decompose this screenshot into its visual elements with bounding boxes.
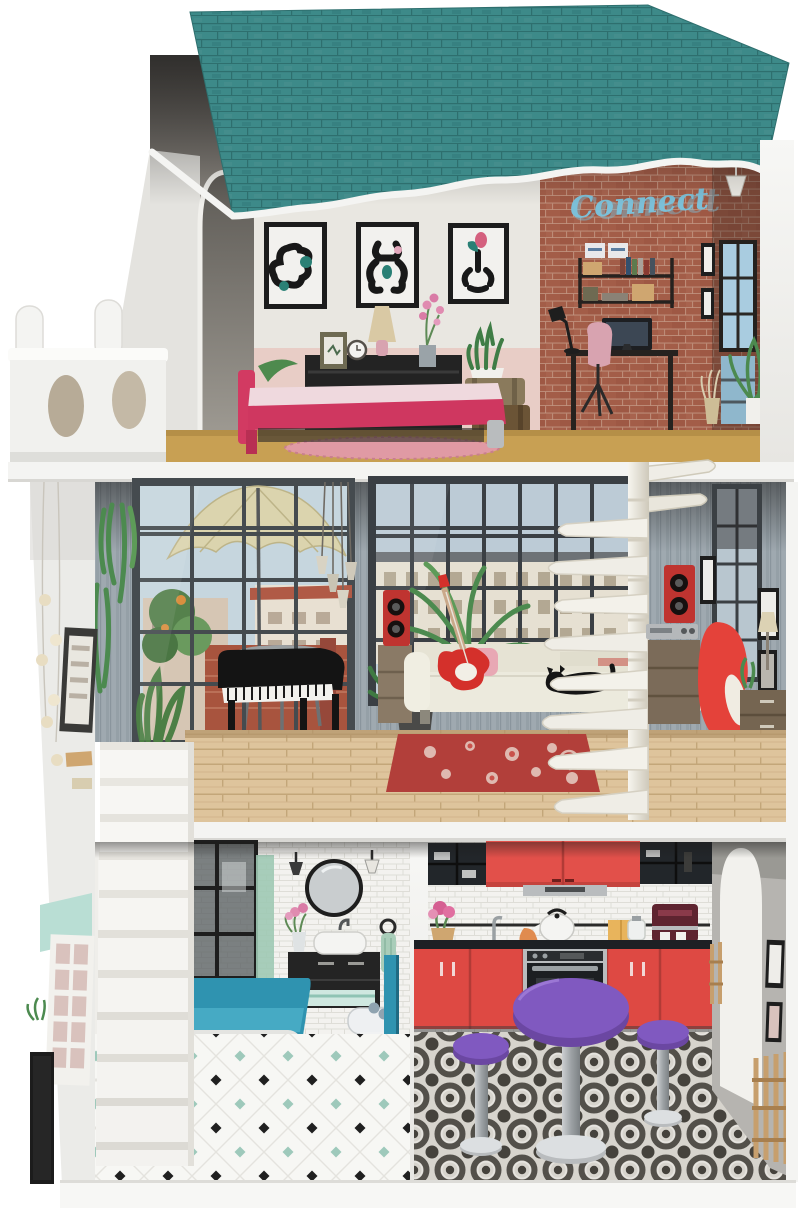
balcony-oval-cutout	[112, 371, 146, 429]
extractor-hood	[523, 885, 607, 896]
stringer-edge	[188, 742, 194, 1166]
small-plant	[28, 998, 45, 1020]
green-glass-panel	[256, 855, 274, 979]
right-exterior-wall	[760, 140, 794, 482]
speaker-right	[664, 565, 695, 623]
glass-jar	[628, 916, 645, 940]
balcony-oval-cutout	[48, 375, 84, 437]
chalkboard	[30, 1052, 54, 1184]
plinth-edge	[60, 1180, 796, 1183]
round-mirror	[307, 861, 361, 915]
coffee-machine	[652, 904, 698, 942]
kitchen-counter	[414, 940, 712, 949]
base-plinth	[60, 1180, 796, 1208]
stereo-sideboard	[646, 624, 700, 724]
terrace-window	[132, 478, 355, 748]
middle-floor	[95, 460, 792, 842]
wall-print-2	[356, 222, 419, 308]
wall-print-3	[448, 223, 509, 304]
photo-frame	[320, 332, 347, 369]
right-edge-wall	[786, 482, 798, 1182]
dollhouse-product-photo: Connect Connect	[0, 0, 800, 1213]
dollhouse-scene: Connect Connect	[0, 0, 800, 1213]
staircase	[96, 742, 194, 1166]
left-side-wall	[28, 482, 98, 1185]
wall-print-1	[264, 222, 327, 309]
alarm-clock	[348, 341, 366, 359]
top-floor: Connect Connect	[96, 5, 794, 482]
ground-ceiling-shadow	[95, 842, 792, 858]
